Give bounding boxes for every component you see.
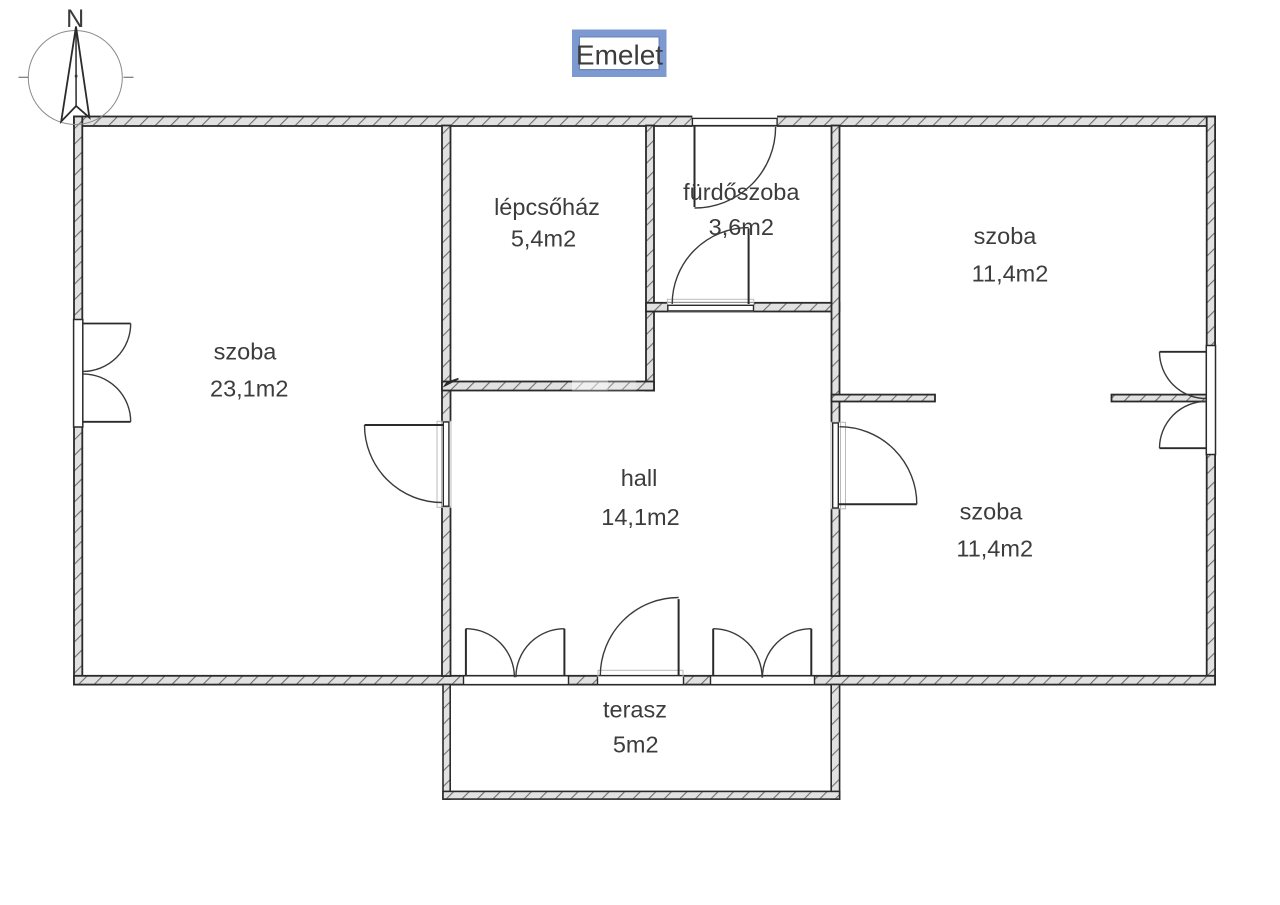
svg-text:3,6m2: 3,6m2 bbox=[709, 214, 774, 240]
svg-text:5,4m2: 5,4m2 bbox=[511, 226, 576, 252]
svg-text:14,1m2: 14,1m2 bbox=[601, 504, 679, 530]
svg-text:hall: hall bbox=[621, 465, 658, 491]
svg-text:11,4m2: 11,4m2 bbox=[972, 261, 1049, 287]
svg-text:Emelet: Emelet bbox=[576, 40, 663, 71]
svg-text:23,1m2: 23,1m2 bbox=[210, 376, 288, 402]
svg-text:11,4m2: 11,4m2 bbox=[956, 535, 1033, 561]
svg-text:fürdőszoba: fürdőszoba bbox=[683, 179, 800, 205]
svg-text:lépcsőház: lépcsőház bbox=[494, 194, 600, 220]
svg-text:szoba: szoba bbox=[960, 499, 1024, 525]
svg-text:5m2: 5m2 bbox=[613, 732, 659, 758]
svg-text:terasz: terasz bbox=[603, 697, 667, 723]
svg-text:szoba: szoba bbox=[214, 339, 278, 365]
svg-text:szoba: szoba bbox=[974, 223, 1038, 249]
